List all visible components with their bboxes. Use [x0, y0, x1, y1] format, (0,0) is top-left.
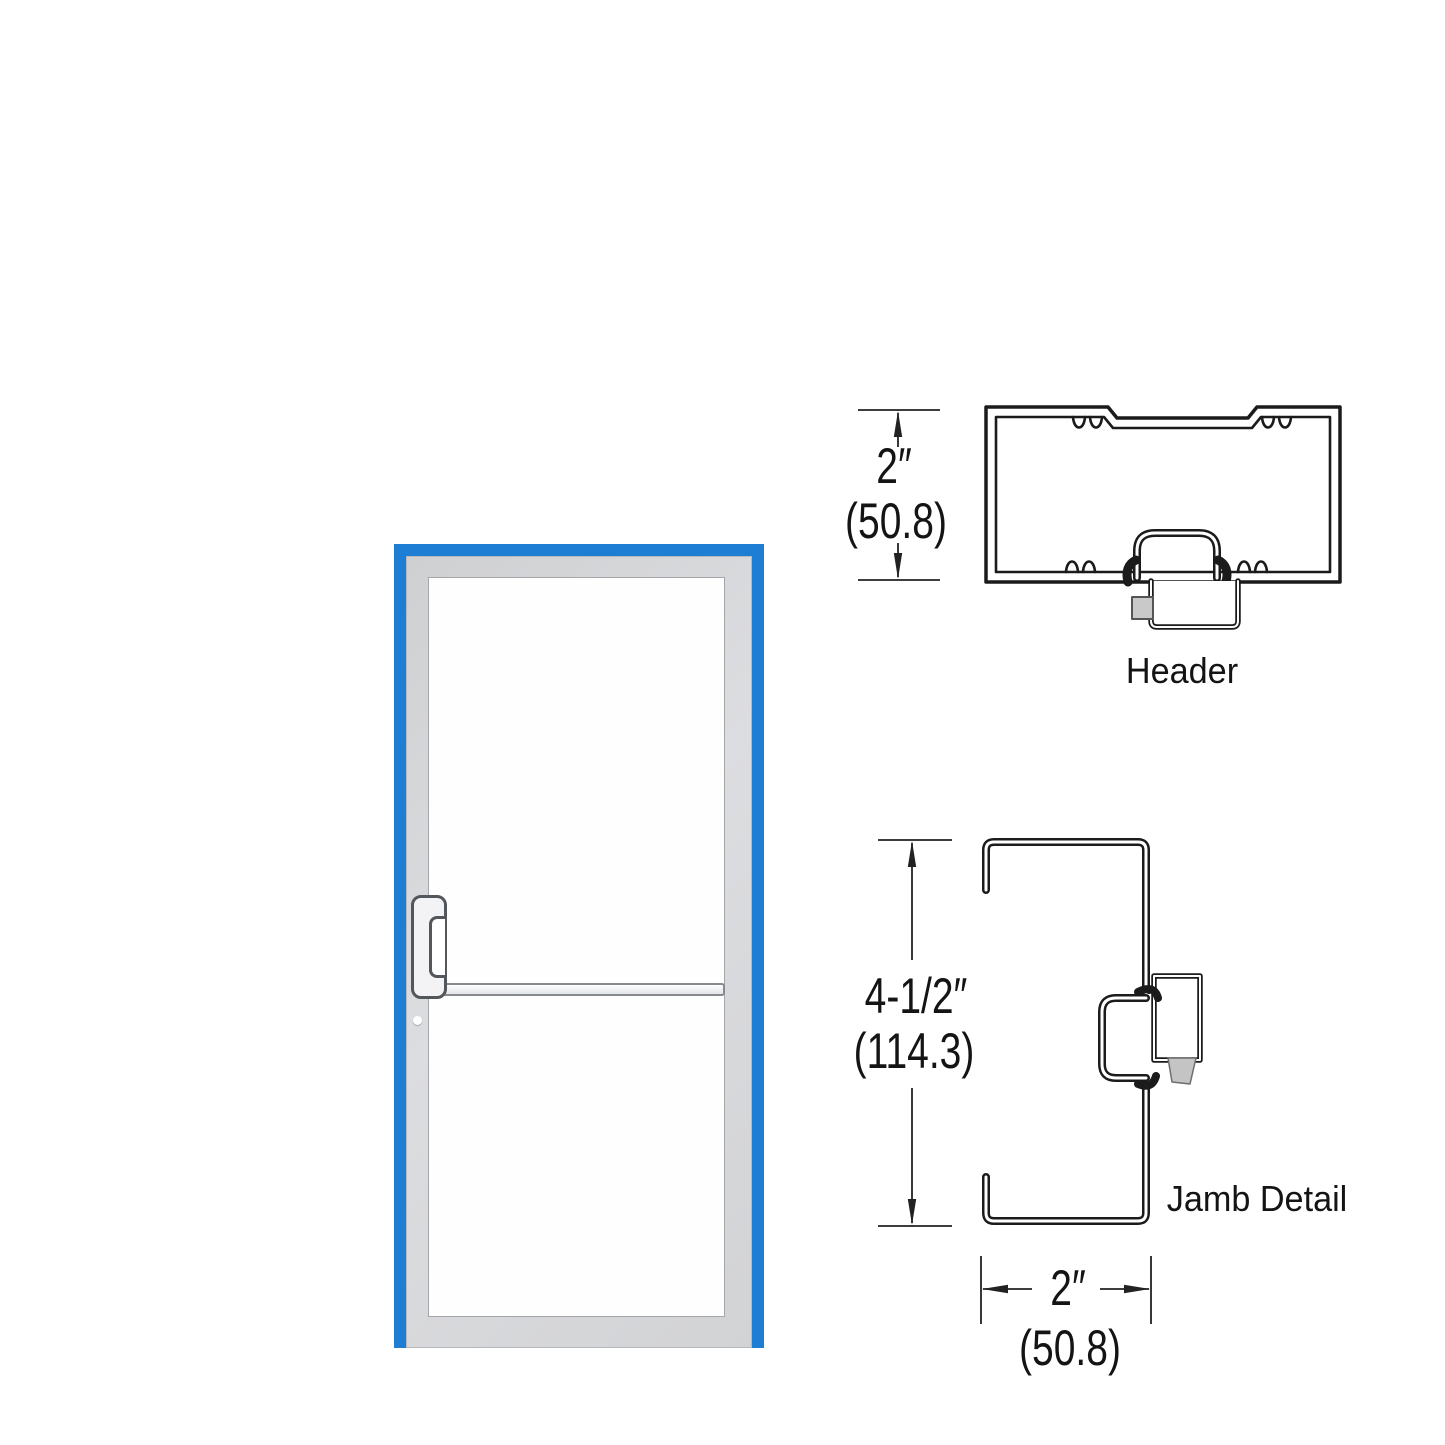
jamb-section-drawing — [986, 842, 1200, 1221]
header-height-inches: 2″ — [876, 441, 912, 491]
jamb-width-mm: (50.8) — [1019, 1323, 1121, 1373]
technical-drawing-layer — [0, 0, 1445, 1445]
header-section-drawing — [986, 407, 1340, 627]
jamb-depth-mm: (114.3) — [854, 1026, 975, 1076]
diagram-page: 2″ (50.8) Header 4-1/2″ (114.3) Jamb Det… — [0, 0, 1445, 1445]
jamb-depth-inches: 4-1/2″ — [865, 971, 968, 1021]
jamb-label: Jamb Detail — [1167, 1181, 1348, 1217]
header-height-mm: (50.8) — [845, 496, 947, 546]
header-label: Header — [1126, 653, 1238, 689]
jamb-width-inches: 2″ — [1050, 1263, 1086, 1313]
